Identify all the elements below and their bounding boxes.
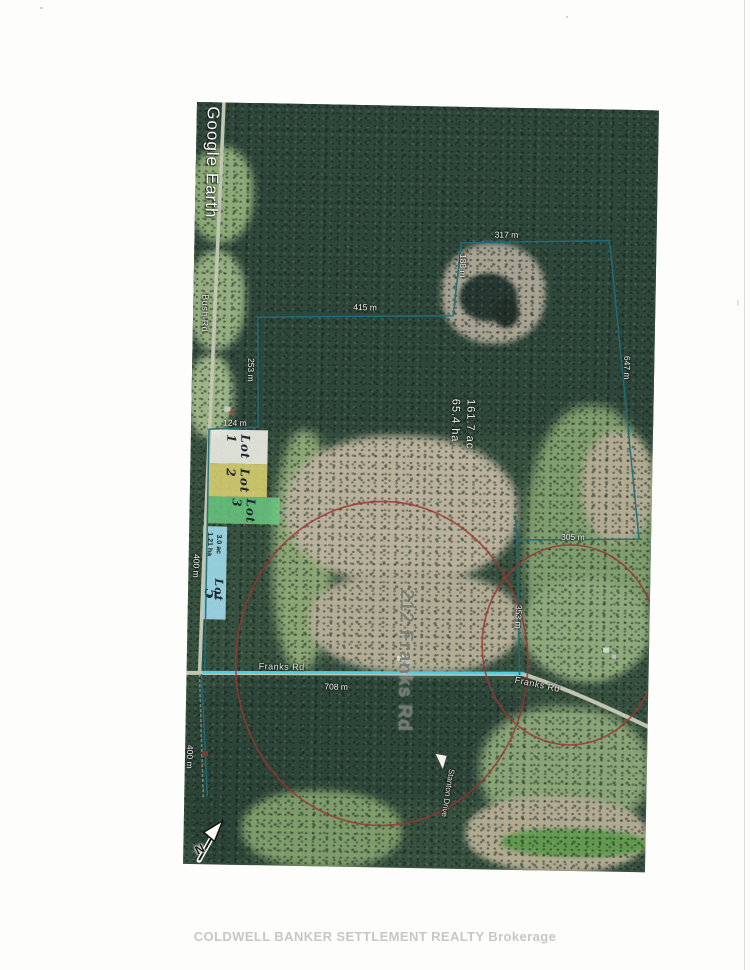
- measurement-305m: 305 m: [561, 532, 585, 542]
- parcel-area-label: 161.7 ac 65.4 ha: [447, 399, 479, 450]
- measurement-415m: 415 m: [353, 302, 377, 312]
- north-label: N: [193, 841, 207, 857]
- franks-rd-label-east: Franks Rd: [514, 675, 561, 694]
- scan-speck: [566, 16, 568, 18]
- measurement-253m: 253 m: [246, 358, 256, 382]
- scan-speck: [40, 7, 43, 9]
- map-labels: Google Earth Bush Rd Franks Rd Franks Rd…: [183, 102, 659, 872]
- property-address-label: 212 Franks Rd: [392, 589, 417, 732]
- measurement-400m-bushrd: 400 m: [191, 554, 201, 578]
- aerial-map: Lot 1 Lot 2 Lot 3 3.0 ac 1.21 ha Lot 5: [183, 102, 659, 872]
- franks-rd-label-west: Franks Rd: [259, 661, 305, 672]
- parcel-area-hectares: 65.4 ha: [448, 399, 463, 449]
- measurement-188m: 188 m: [458, 254, 468, 278]
- measurement-353m: 353 m: [513, 605, 523, 629]
- brokerage-watermark: COLDWELL BANKER SETTLEMENT REALTY Broker…: [0, 929, 750, 944]
- parcel-area-acres: 161.7 ac: [463, 399, 478, 449]
- google-earth-watermark: Google Earth: [201, 106, 223, 219]
- measurement-317m: 317 m: [495, 229, 519, 239]
- measurement-124m: 124 m: [223, 418, 247, 428]
- stanton-drive-label: Stanton Drive: [440, 768, 457, 817]
- bush-rd-label: Bush Rd: [200, 294, 211, 332]
- scan-speck: [737, 300, 739, 306]
- measurement-400m-south: 400 m: [185, 745, 195, 769]
- scan-edge-line: [744, 0, 745, 970]
- measurement-708m: 708 m: [324, 681, 348, 691]
- measurement-647m: 647 m: [622, 356, 632, 380]
- scanned-listing-page: Lot 1 Lot 2 Lot 3 3.0 ac 1.21 ha Lot 5: [0, 0, 750, 970]
